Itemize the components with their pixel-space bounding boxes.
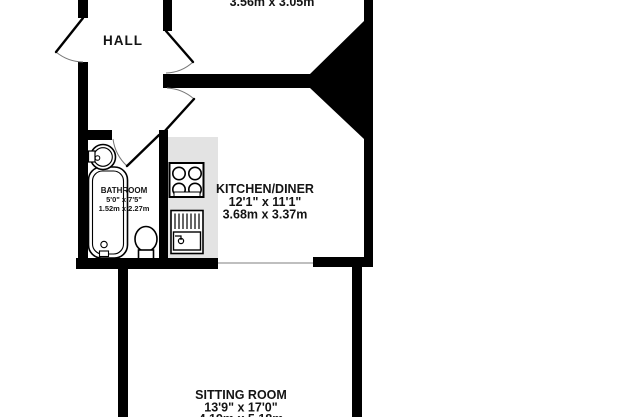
floor-plan: HALL 3.56m x 3.05m KITCHEN/DINER 12'1" x… (0, 0, 640, 417)
bathroom-door (113, 135, 159, 166)
wall-right-outer (364, 0, 373, 267)
hall-label: HALL (103, 33, 143, 48)
wall-left-main (78, 62, 88, 269)
door-leaf (164, 99, 194, 132)
kitchen-door (164, 88, 194, 132)
washbasin-icon (89, 145, 116, 170)
hob-icon (170, 163, 204, 197)
bathroom-imperial-label: 5'0" x 7'5" (106, 195, 142, 204)
wall-hall-right (163, 0, 172, 31)
door-swing-icon (56, 52, 83, 62)
door-leaf (166, 31, 193, 62)
wall-top-divider (163, 74, 315, 88)
door-swing-icon (166, 62, 193, 73)
wall-bathroom-top (78, 130, 112, 140)
kitchen-label: KITCHEN/DINER (216, 182, 314, 196)
wall-chamfer-corner (310, 21, 364, 139)
kitchen-metric-label: 3.68m x 3.37m (223, 208, 308, 222)
wall-sitting-left (118, 269, 128, 417)
wall-bathroom-bottom (76, 258, 218, 269)
wall-sitting-top-right (313, 257, 373, 267)
toilet-icon (135, 227, 157, 260)
door-leaf (56, 18, 83, 52)
front-door (56, 18, 83, 62)
door-leaf (127, 135, 159, 166)
bathroom-metric-label: 1.52m x 2.27m (99, 204, 150, 213)
sitting-room-metric-label: 4.19m x 5.18m (199, 412, 284, 417)
door-swing-icon (167, 88, 194, 99)
wall-bathroom-right (159, 130, 168, 259)
bedroom-door (166, 31, 193, 73)
top-room-metric-label: 3.56m x 3.05m (230, 0, 315, 9)
wall-left-top (78, 0, 88, 18)
wall-sitting-right (352, 267, 362, 417)
kitchen-sink-icon (171, 211, 203, 254)
bathroom-label: BATHROOM (101, 186, 148, 195)
